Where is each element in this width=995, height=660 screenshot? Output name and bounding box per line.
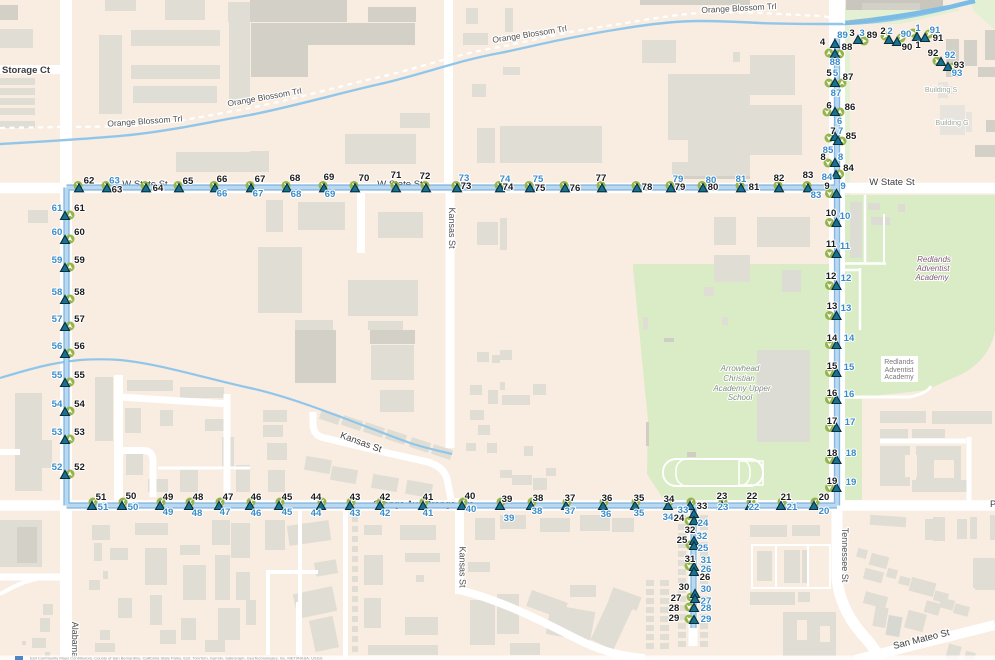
svg-text:41: 41 (423, 508, 434, 519)
svg-text:24: 24 (674, 513, 685, 524)
svg-text:25: 25 (698, 543, 709, 554)
svg-text:18: 18 (827, 448, 838, 459)
svg-text:85: 85 (846, 131, 857, 142)
svg-text:Tennessee St: Tennessee St (840, 528, 850, 583)
svg-text:8: 8 (838, 152, 844, 163)
svg-text:12: 12 (826, 271, 837, 282)
svg-text:21: 21 (787, 502, 798, 513)
svg-text:23: 23 (718, 502, 729, 513)
svg-text:89: 89 (867, 30, 878, 41)
svg-text:34: 34 (664, 494, 675, 505)
svg-text:64: 64 (153, 183, 164, 194)
svg-text:14: 14 (827, 333, 838, 344)
svg-text:76: 76 (570, 183, 581, 194)
svg-text:Arrowhead: Arrowhead (720, 364, 760, 373)
svg-text:52: 52 (74, 462, 85, 473)
svg-text:67: 67 (255, 174, 266, 185)
svg-text:4: 4 (820, 37, 826, 48)
svg-text:84: 84 (822, 172, 833, 183)
svg-text:13: 13 (841, 303, 852, 314)
svg-text:61: 61 (74, 203, 85, 214)
svg-text:38: 38 (533, 493, 544, 504)
svg-text:Esri Community Maps Contributo: Esri Community Maps Contributors, County… (30, 655, 323, 660)
svg-text:65: 65 (183, 176, 194, 187)
svg-text:44: 44 (311, 508, 322, 519)
svg-text:10: 10 (840, 211, 851, 222)
svg-text:Adventist: Adventist (916, 264, 951, 273)
svg-text:48: 48 (193, 492, 204, 503)
svg-text:11: 11 (840, 241, 851, 252)
svg-text:5: 5 (826, 68, 832, 79)
svg-text:11: 11 (826, 239, 837, 250)
svg-text:88: 88 (830, 57, 841, 68)
svg-text:39: 39 (502, 494, 513, 505)
svg-text:30: 30 (679, 582, 690, 593)
svg-text:40: 40 (466, 504, 477, 515)
svg-text:31: 31 (685, 554, 696, 565)
svg-text:49: 49 (163, 492, 174, 503)
svg-text:School: School (728, 393, 753, 402)
svg-text:Academy: Academy (884, 374, 914, 381)
svg-text:6: 6 (826, 101, 831, 112)
svg-text:23: 23 (717, 491, 728, 502)
svg-text:78: 78 (642, 182, 653, 193)
svg-text:36: 36 (601, 509, 612, 520)
svg-text:69: 69 (324, 172, 335, 183)
svg-text:43: 43 (350, 492, 361, 503)
svg-text:91: 91 (933, 33, 944, 44)
svg-text:47: 47 (223, 492, 234, 503)
svg-text:59: 59 (52, 255, 63, 266)
svg-text:55: 55 (52, 370, 63, 381)
svg-text:87: 87 (831, 88, 842, 99)
svg-text:Academy Upper: Academy Upper (712, 384, 771, 393)
svg-text:41: 41 (423, 492, 434, 503)
svg-text:26: 26 (701, 564, 712, 575)
svg-text:W State St: W State St (869, 177, 915, 188)
svg-text:28: 28 (701, 603, 712, 614)
svg-text:Christian: Christian (723, 374, 755, 383)
svg-text:36: 36 (602, 493, 613, 504)
svg-text:74: 74 (500, 174, 511, 185)
svg-text:42: 42 (380, 492, 391, 503)
svg-text:89: 89 (837, 30, 848, 41)
svg-text:38: 38 (532, 506, 543, 517)
svg-text:90: 90 (901, 29, 912, 40)
svg-text:75: 75 (533, 174, 544, 185)
svg-text:32: 32 (697, 531, 708, 542)
svg-text:19: 19 (846, 477, 857, 488)
svg-text:57: 57 (52, 314, 63, 325)
svg-text:13: 13 (827, 301, 838, 312)
svg-text:1: 1 (915, 23, 921, 34)
svg-text:35: 35 (634, 508, 645, 519)
svg-text:68: 68 (290, 173, 301, 184)
svg-text:2: 2 (887, 26, 892, 37)
svg-text:Building S: Building S (925, 85, 958, 94)
svg-text:2: 2 (880, 26, 885, 37)
svg-text:18: 18 (846, 448, 857, 459)
svg-text:15: 15 (827, 361, 838, 372)
svg-text:Kansas St: Kansas St (447, 207, 457, 249)
svg-text:47: 47 (220, 507, 231, 518)
svg-text:3: 3 (859, 28, 864, 39)
svg-text:29: 29 (701, 614, 712, 625)
svg-text:24: 24 (698, 518, 709, 529)
svg-text:16: 16 (844, 389, 855, 400)
svg-text:43: 43 (350, 508, 361, 519)
svg-text:58: 58 (52, 287, 63, 298)
svg-text:37: 37 (565, 506, 576, 517)
svg-text:55: 55 (74, 370, 85, 381)
svg-text:Alabama St: Alabama St (70, 622, 80, 660)
svg-text:22: 22 (747, 491, 758, 502)
svg-text:37: 37 (565, 493, 576, 504)
svg-text:5: 5 (833, 68, 839, 79)
svg-text:51: 51 (98, 502, 109, 513)
svg-text:81: 81 (749, 182, 760, 193)
svg-text:56: 56 (74, 341, 85, 352)
svg-text:33: 33 (697, 501, 708, 512)
svg-text:53: 53 (74, 427, 85, 438)
svg-text:59: 59 (74, 255, 85, 266)
svg-text:14: 14 (844, 333, 855, 344)
svg-text:69: 69 (325, 189, 336, 200)
svg-text:Kansas St: Kansas St (458, 546, 468, 588)
svg-text:16: 16 (827, 388, 838, 399)
svg-text:10: 10 (826, 208, 837, 219)
svg-text:46: 46 (251, 508, 262, 519)
svg-text:66: 66 (217, 189, 228, 200)
svg-text:60: 60 (52, 227, 63, 238)
svg-text:39: 39 (504, 513, 515, 524)
svg-text:34: 34 (663, 512, 674, 523)
svg-text:29: 29 (669, 613, 680, 624)
svg-text:48: 48 (192, 508, 203, 519)
svg-text:Adventist: Adventist (885, 367, 914, 374)
svg-text:54: 54 (74, 399, 85, 410)
svg-text:P: P (990, 499, 995, 510)
svg-text:52: 52 (52, 462, 63, 473)
svg-text:86: 86 (845, 102, 856, 113)
svg-text:22: 22 (749, 502, 760, 513)
svg-text:72: 72 (420, 171, 431, 182)
svg-text:82: 82 (774, 173, 785, 184)
svg-text:25: 25 (677, 535, 688, 546)
svg-text:Building G: Building G (935, 118, 969, 127)
svg-text:17: 17 (845, 417, 856, 428)
svg-text:19: 19 (827, 476, 838, 487)
svg-text:50: 50 (128, 502, 139, 513)
svg-text:Redlands: Redlands (884, 359, 914, 366)
svg-text:81: 81 (736, 174, 747, 185)
svg-text:8: 8 (820, 152, 826, 163)
svg-text:42: 42 (380, 508, 391, 519)
svg-text:35: 35 (634, 493, 645, 504)
svg-text:Academy: Academy (914, 273, 949, 282)
svg-text:63: 63 (109, 176, 120, 187)
svg-text:67: 67 (253, 189, 264, 200)
svg-text:87: 87 (843, 72, 854, 83)
svg-text:83: 83 (811, 190, 822, 201)
svg-text:12: 12 (841, 273, 852, 284)
svg-text:30: 30 (701, 584, 712, 595)
svg-text:45: 45 (282, 492, 293, 503)
svg-text:49: 49 (163, 507, 174, 518)
svg-text:15: 15 (844, 362, 855, 373)
svg-text:56: 56 (52, 341, 63, 352)
svg-text:57: 57 (74, 314, 85, 325)
svg-text:83: 83 (803, 170, 814, 181)
svg-text:20: 20 (819, 492, 830, 503)
svg-text:77: 77 (596, 173, 607, 184)
svg-text:73: 73 (459, 173, 470, 184)
svg-text:88: 88 (842, 42, 853, 53)
svg-text:62: 62 (84, 176, 95, 187)
svg-text:50: 50 (126, 491, 137, 502)
svg-text:54: 54 (52, 399, 63, 410)
svg-text:53: 53 (52, 427, 63, 438)
svg-text:46: 46 (251, 492, 262, 503)
svg-text:58: 58 (74, 287, 85, 298)
svg-text:80: 80 (706, 175, 717, 186)
svg-text:92: 92 (928, 48, 939, 59)
svg-text:40: 40 (465, 491, 476, 502)
svg-text:20: 20 (819, 506, 830, 517)
svg-text:90: 90 (902, 42, 913, 53)
svg-text:17: 17 (827, 416, 838, 427)
svg-text:79: 79 (673, 174, 684, 185)
svg-text:45: 45 (282, 507, 293, 518)
svg-text:1: 1 (915, 40, 921, 51)
svg-text:3: 3 (849, 28, 854, 39)
svg-text:61: 61 (52, 203, 63, 214)
svg-text:70: 70 (359, 173, 370, 184)
svg-text:68: 68 (291, 189, 302, 200)
svg-text:60: 60 (74, 227, 85, 238)
svg-text:Storage Ct: Storage Ct (2, 65, 51, 76)
svg-text:7: 7 (830, 126, 835, 137)
svg-text:44: 44 (311, 492, 322, 503)
svg-text:66: 66 (217, 174, 228, 185)
svg-text:9: 9 (840, 181, 845, 192)
svg-text:93: 93 (952, 68, 963, 79)
svg-text:71: 71 (391, 170, 402, 181)
svg-text:Redlands: Redlands (917, 255, 951, 264)
svg-text:84: 84 (843, 163, 854, 174)
svg-text:7: 7 (838, 126, 843, 137)
